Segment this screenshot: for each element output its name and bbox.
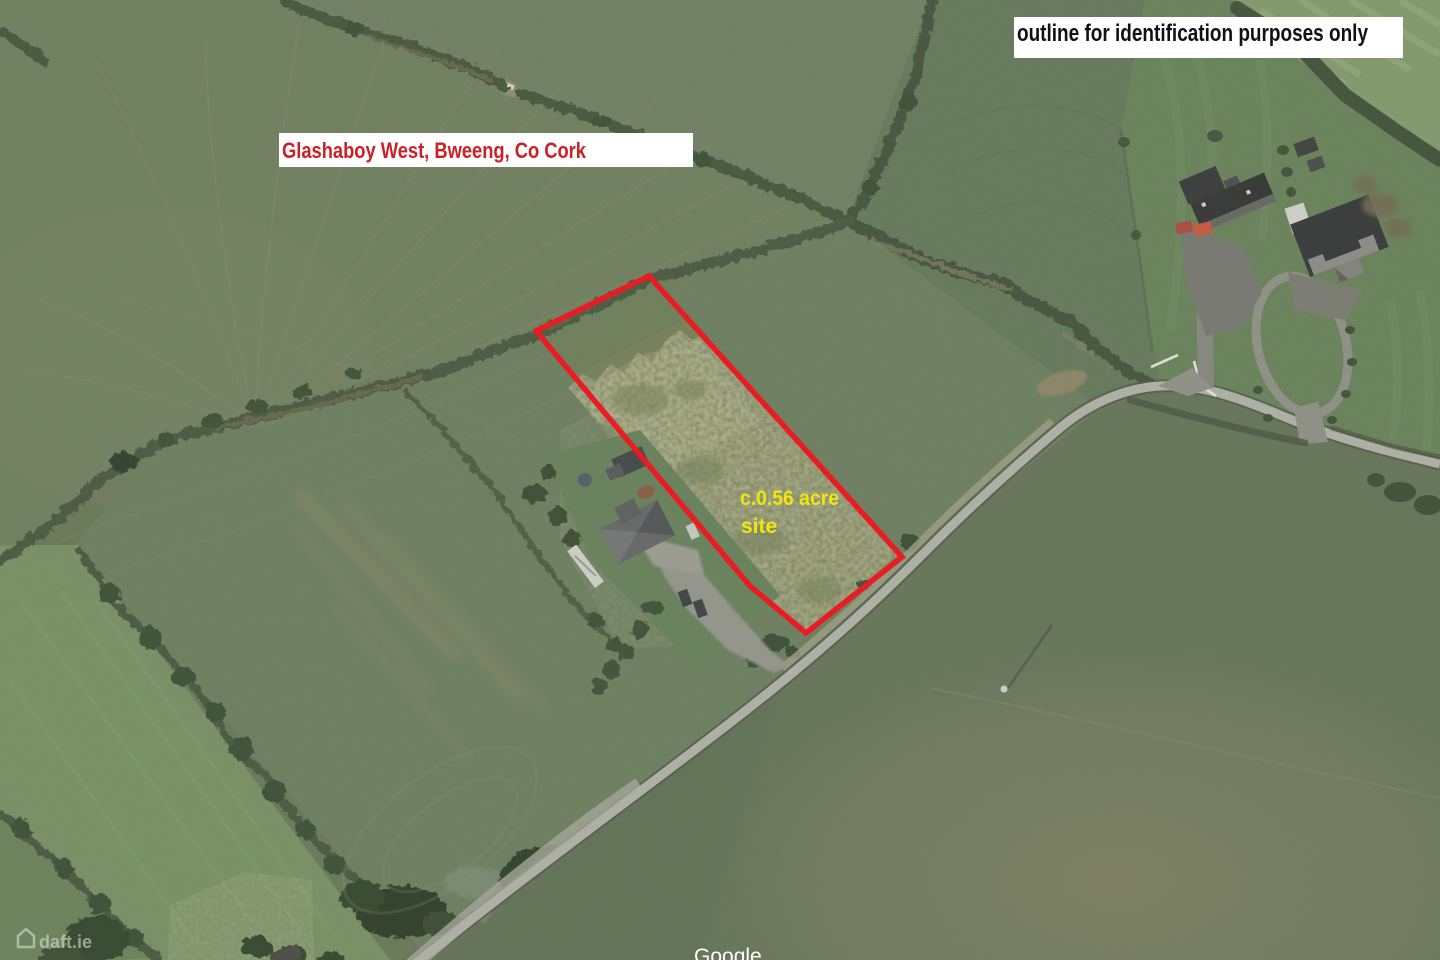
svg-text:c.0.56 acre: c.0.56 acre (740, 487, 839, 510)
svg-text:Glashaboy West, Bweeng, Co Cor: Glashaboy West, Bweeng, Co Cork (282, 138, 587, 163)
svg-text:site: site (741, 515, 777, 538)
svg-text:outline for identification pur: outline for identification purposes only (1017, 20, 1369, 47)
svg-text:Google: Google (694, 945, 762, 960)
svg-text:daft.ie: daft.ie (39, 932, 92, 952)
